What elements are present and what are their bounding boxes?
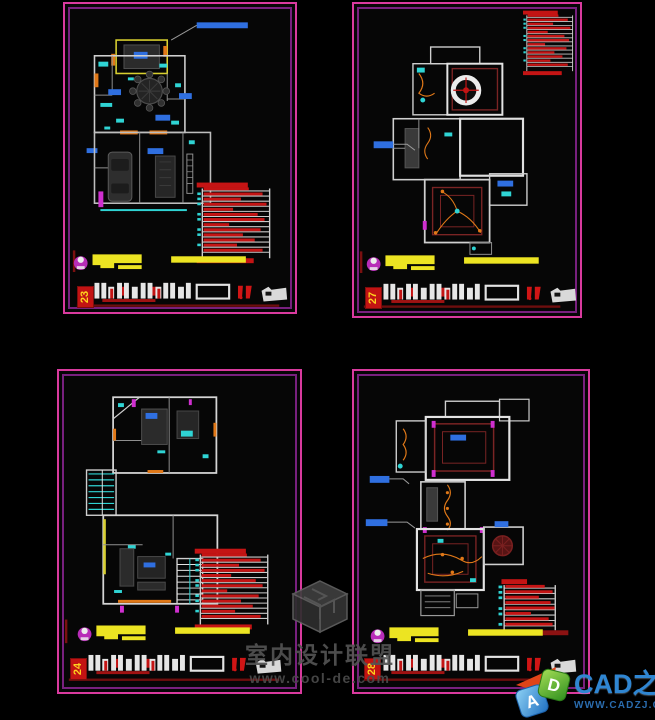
sheet-number: 27	[368, 292, 380, 304]
car-icon	[108, 152, 132, 201]
cad-multi-sheet-preview: 23	[0, 0, 655, 720]
cadzj-cubes-icon: A D	[508, 663, 572, 719]
drawing-sheet-27[interactable]: 27	[352, 2, 582, 318]
cadzj-logo[interactable]: A D CAD之家 WWW.CADZJ.COM	[508, 663, 655, 719]
title-bar	[371, 627, 543, 643]
round-dining-table	[129, 71, 169, 111]
legend-table	[492, 579, 569, 635]
floor-plan-art	[65, 4, 295, 312]
sheet-number-badge: 23	[77, 286, 94, 308]
cool-de-cube-logo-icon	[290, 580, 350, 634]
plan-ceiling	[374, 47, 527, 254]
legend-table	[197, 183, 271, 264]
watermark-site-name: 室内设计联盟	[245, 636, 395, 670]
cadzj-text-block: CAD之家 WWW.CADZJ.COM	[574, 663, 655, 711]
ceiling-plan-art	[354, 4, 580, 316]
title-bar	[74, 254, 246, 270]
sheet-number: 23	[80, 291, 92, 303]
sheet-number-badge: 27	[365, 287, 382, 309]
watermark-site-url: www.cool-de.com	[250, 670, 391, 686]
legend-table	[523, 11, 573, 75]
cadzj-url: WWW.CADZJ.COM	[574, 700, 655, 711]
watermark-coolde: 室内设计联盟 www.cool-de.com	[244, 580, 396, 686]
sheet-number-badge: 24	[70, 658, 87, 680]
title-block-strip	[94, 283, 287, 302]
title-block-strip	[383, 284, 576, 303]
cadzj-name: CAD之家	[574, 671, 655, 698]
sofa-set	[120, 549, 165, 590]
round-chandelier	[484, 521, 523, 564]
round-ceiling-feature	[453, 77, 479, 103]
sheet-number: 24	[73, 663, 85, 675]
stairs-left	[87, 470, 117, 515]
title-bar	[367, 255, 539, 271]
title-bar	[78, 625, 250, 641]
drawing-sheet-23[interactable]: 23	[63, 2, 297, 314]
